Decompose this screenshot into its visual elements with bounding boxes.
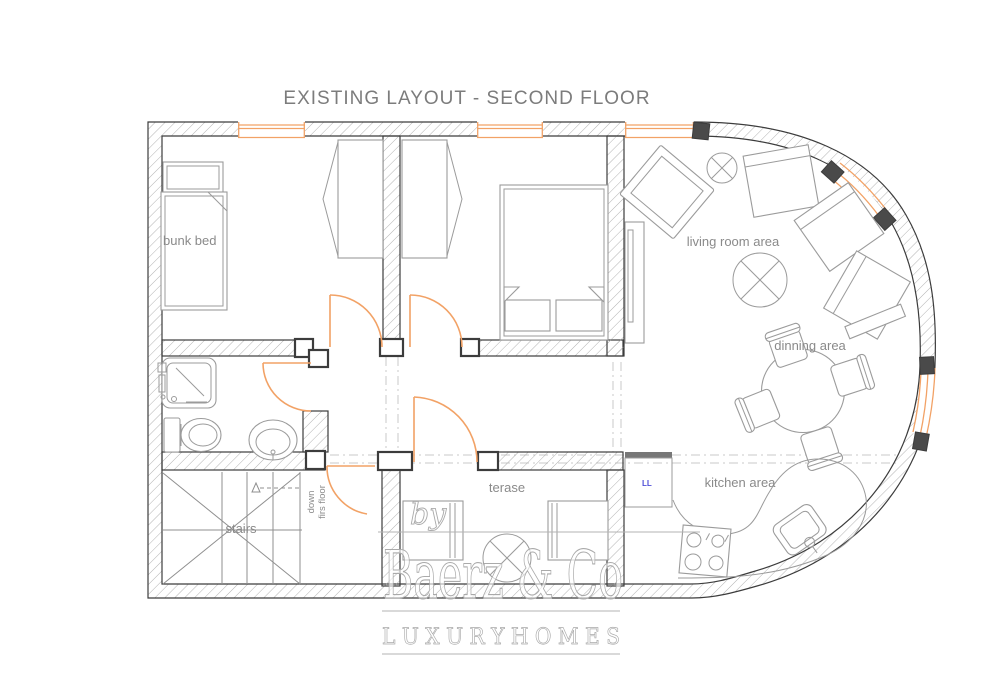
wall-bed2-right (607, 136, 624, 356)
door-bathroom (263, 363, 311, 411)
fridge-unit: LL (625, 452, 672, 507)
wall-terrace-top (478, 452, 623, 470)
doors (263, 295, 477, 514)
label-dining-area: dinning area (774, 338, 846, 353)
stairs-direction-arrow (252, 483, 300, 492)
stove (679, 525, 731, 577)
sofa-section-1 (743, 145, 819, 218)
window-top-1 (238, 121, 305, 138)
page-title: EXISTING LAYOUT - SECOND FLOOR (283, 88, 650, 109)
side-table (707, 153, 737, 183)
door-bedroom2 (410, 295, 462, 347)
bidet (249, 420, 297, 460)
label-kitchen-area: kitchen area (705, 475, 777, 490)
watermark-tagline: L U X U R Y H O M E S (382, 625, 620, 650)
wall-room1-bottom (162, 340, 312, 356)
label-stairs-note1: down (306, 491, 317, 514)
window-top-2 (477, 121, 543, 138)
tv-cabinet (625, 222, 644, 343)
coffee-table (733, 253, 787, 307)
label-stairs: stairs (225, 521, 257, 536)
label-terrace: terase (489, 480, 525, 495)
label-stairs-note2: firs floor (317, 485, 328, 519)
label-living-room: living room area (687, 234, 780, 249)
door-bunk-room (330, 295, 382, 347)
watermark: by Baerz & Co L U X U R Y H O M E S (378, 497, 700, 654)
watermark-brand: Baerz & Co (383, 537, 623, 614)
double-bed (500, 185, 608, 340)
wardrobe-left (323, 140, 383, 258)
door-terrace (414, 397, 477, 462)
wall-central-upper (383, 136, 400, 340)
floor-plan-drawing: LL (0, 0, 1000, 683)
window-top-3 (625, 121, 694, 138)
floor-plan-page: LL (0, 0, 1000, 683)
wall-bath-bottom (162, 452, 325, 470)
appliance-mark: LL (642, 479, 652, 488)
door-stairs (327, 466, 375, 514)
watermark-by: by (410, 497, 447, 532)
wall-bath-right (303, 411, 328, 452)
wardrobe-right (402, 140, 462, 258)
toilet (164, 418, 221, 452)
wall-bed2-bottom (461, 340, 623, 356)
label-bunk-bed: bunk bed (163, 233, 217, 248)
shower (158, 358, 216, 408)
